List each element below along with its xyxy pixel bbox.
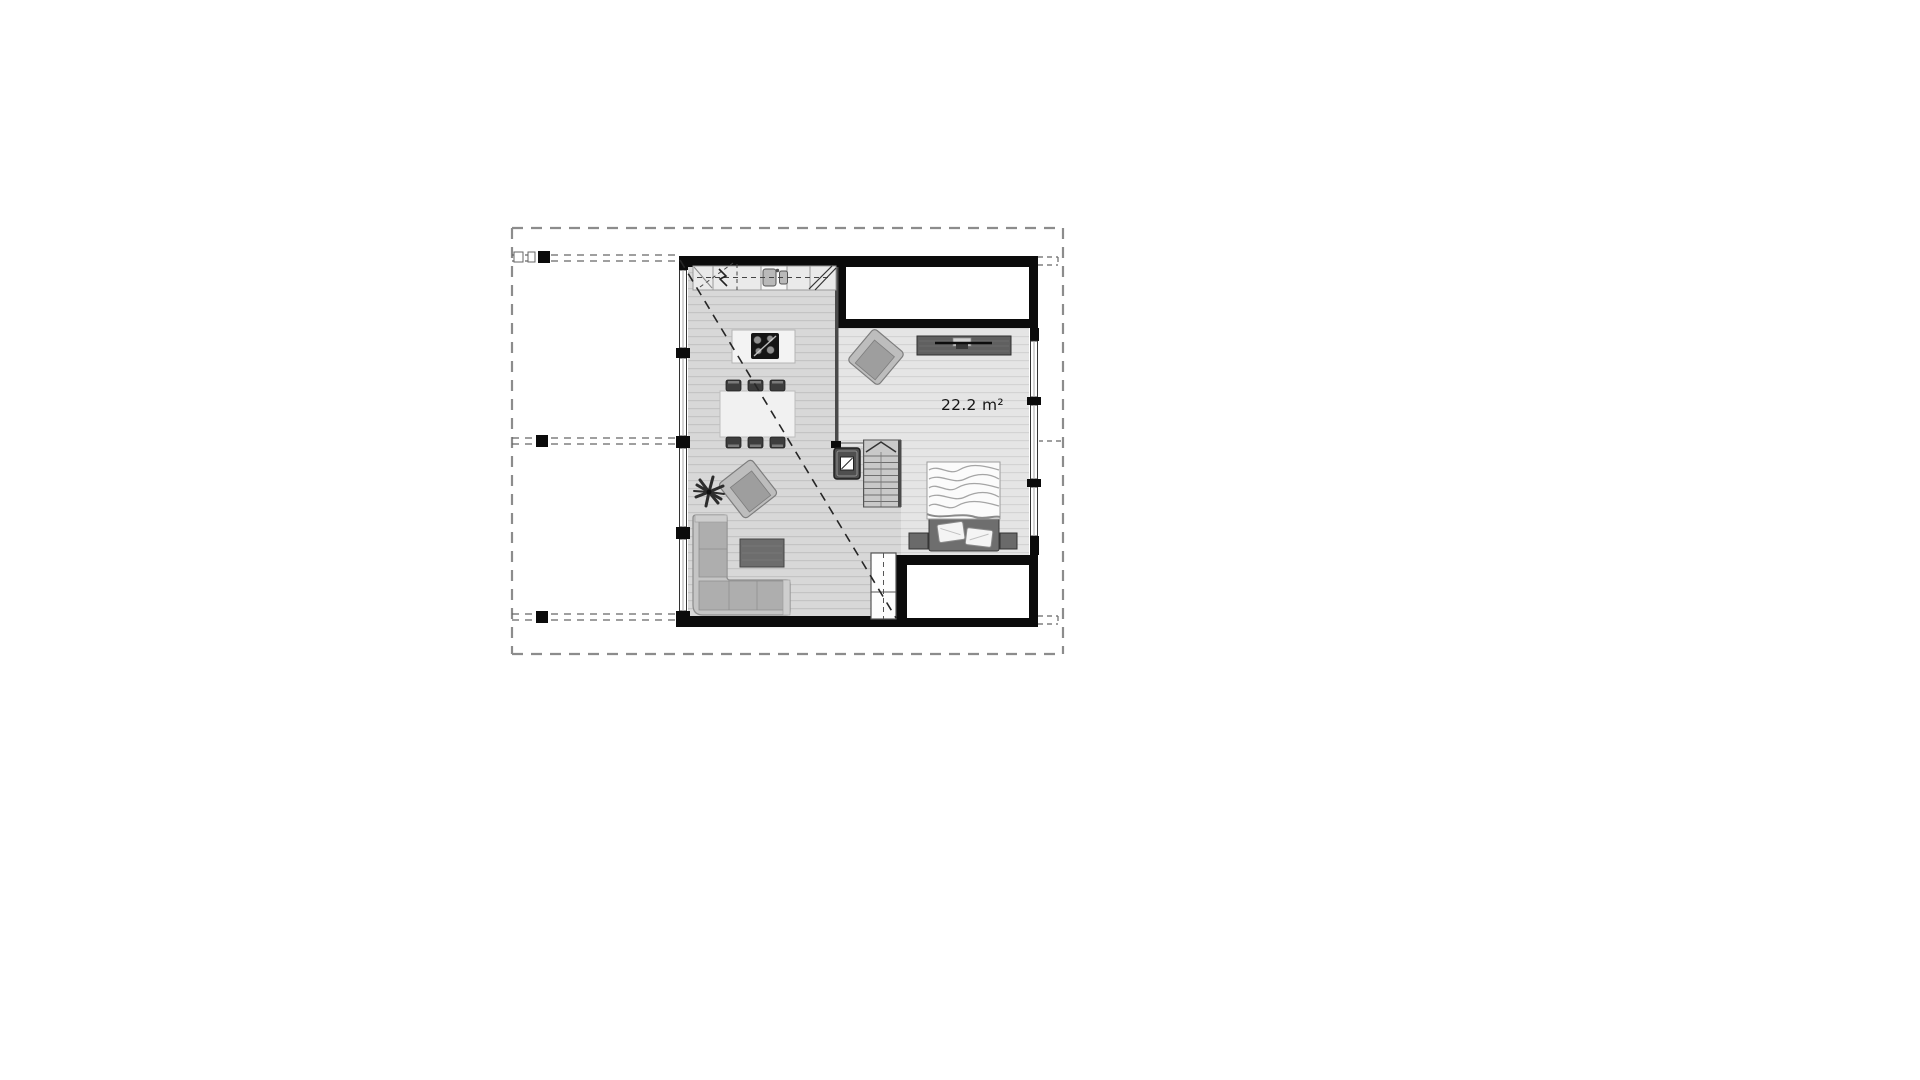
void-room-top-interior — [846, 267, 1029, 319]
column-post — [538, 251, 550, 263]
post-outline — [514, 252, 523, 262]
void-room-bottom-interior — [907, 565, 1029, 618]
nightstand-left — [909, 533, 928, 549]
dining-set — [720, 380, 795, 448]
divider-post — [831, 441, 841, 448]
duvet — [927, 462, 1000, 519]
floor-plan-page: 22.2 m² — [0, 0, 1920, 1080]
window-mullion — [676, 436, 690, 448]
divider-wall — [835, 267, 839, 441]
room-area-label: 22.2 m² — [941, 396, 1004, 414]
window-wall-right — [1027, 328, 1041, 555]
column-post — [536, 611, 548, 623]
window-mullion — [676, 348, 690, 358]
window-mullion — [1027, 397, 1041, 405]
nightstand-right — [1000, 533, 1017, 549]
window-mullion — [676, 527, 690, 539]
wood-stove — [834, 448, 860, 479]
floor-plan-drawing: 22.2 m² — [0, 0, 1920, 1080]
sofa-armrest — [783, 580, 790, 615]
window-mullion — [1027, 479, 1041, 487]
post-outline — [528, 252, 535, 262]
stair-wall — [898, 440, 902, 507]
faucet — [776, 269, 779, 272]
dining-table — [720, 391, 795, 437]
sofa-armrest — [695, 515, 727, 522]
column-post — [536, 435, 548, 447]
window-wall-left — [676, 263, 690, 627]
corner-post — [676, 611, 690, 627]
wall-bottom — [679, 616, 898, 627]
under-stair-cabinet — [871, 553, 896, 619]
tv-sideboard — [917, 336, 1011, 355]
